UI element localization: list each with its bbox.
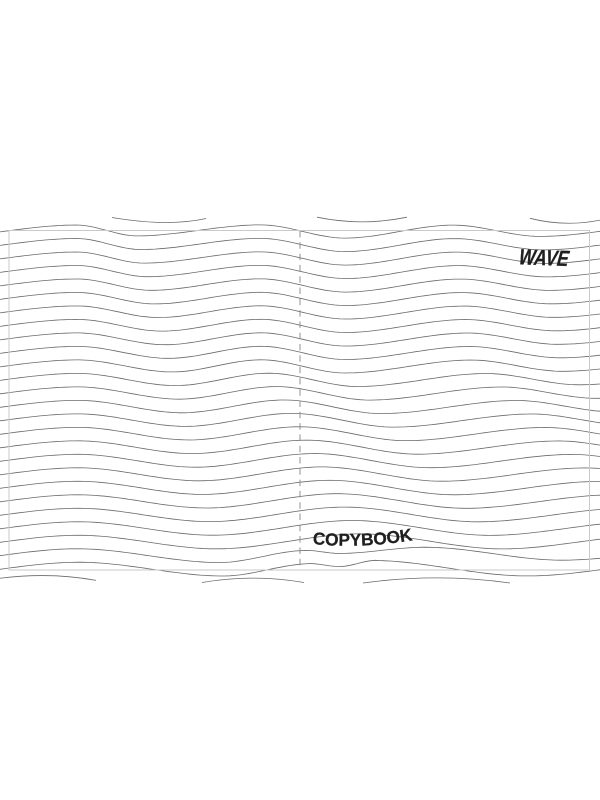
svg-text:WAVE: WAVE: [516, 246, 572, 272]
